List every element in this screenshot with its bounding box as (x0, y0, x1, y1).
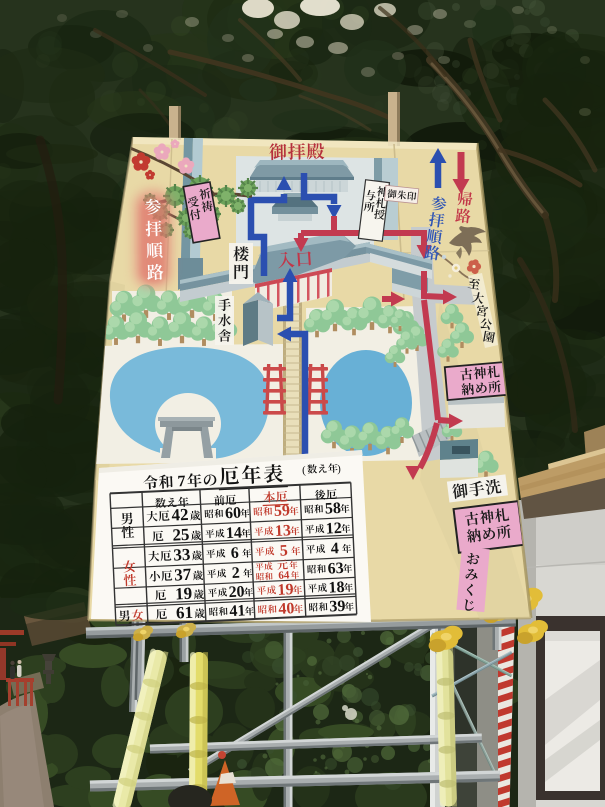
svg-text:60: 60 (225, 504, 242, 522)
svg-text:64: 64 (278, 569, 290, 582)
svg-text:18: 18 (328, 579, 345, 597)
svg-text:42: 42 (171, 505, 189, 525)
svg-text:19: 19 (175, 584, 193, 604)
svg-text:2: 2 (231, 565, 240, 582)
svg-text:63: 63 (327, 560, 344, 578)
svg-text:41: 41 (229, 602, 246, 620)
svg-text:33: 33 (173, 545, 191, 565)
svg-text:58: 58 (325, 500, 342, 518)
svg-text:59: 59 (274, 502, 291, 520)
svg-text:19: 19 (277, 581, 294, 599)
svg-text:14: 14 (226, 524, 243, 542)
svg-text:5: 5 (279, 542, 288, 559)
svg-text:20: 20 (228, 583, 245, 601)
svg-text:7: 7 (177, 473, 186, 490)
svg-text:12: 12 (325, 520, 342, 538)
svg-text:37: 37 (174, 565, 192, 585)
svg-text:40: 40 (278, 600, 295, 618)
svg-text:6: 6 (230, 545, 239, 562)
svg-text:13: 13 (275, 522, 292, 540)
svg-text:25: 25 (172, 525, 190, 545)
svg-text:39: 39 (329, 598, 346, 616)
svg-text:61: 61 (176, 603, 194, 623)
svg-text:4: 4 (330, 540, 339, 557)
